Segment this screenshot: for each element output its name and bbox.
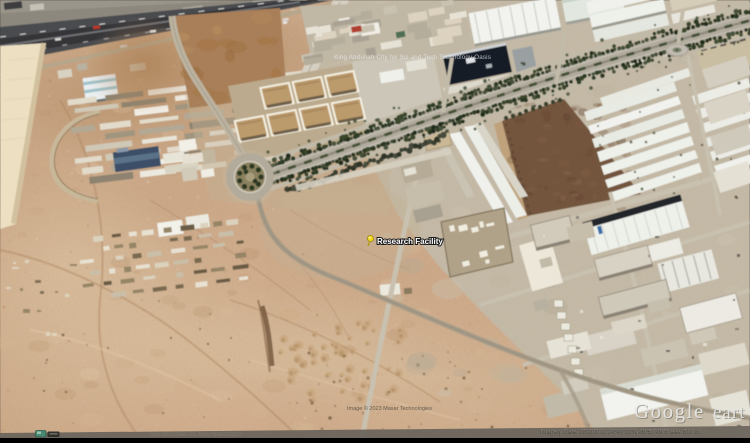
svg-text:King Abdullah City for Sci and: King Abdullah City for Sci and Tech Tech… — [334, 54, 491, 61]
svg-text:Data SIO NOAA U.S. Navy NGA GE: Data SIO NOAA U.S. Navy NGA GEBCO — [150, 432, 241, 438]
svg-text:Image © 2023 Maxar Technologie: Image © 2023 Maxar Technologies — [347, 405, 432, 412]
svg-text:eart: eart — [713, 402, 745, 423]
svg-text:Google: Google — [634, 399, 705, 423]
svg-text:Imagery Date: 10/2/2022 24°: Imagery Date: 10/2/2022 24°44'11"N 46°52… — [540, 430, 700, 436]
svg-text:Research Facility: Research Facility — [377, 237, 443, 246]
